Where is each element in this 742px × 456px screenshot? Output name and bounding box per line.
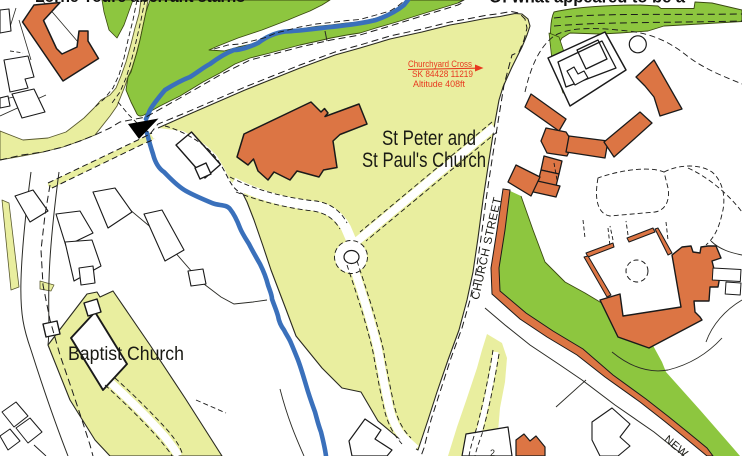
svg-text:2: 2 (490, 448, 495, 456)
svg-text:St Peter and: St Peter and (382, 127, 476, 150)
svg-text:St Paul's Church: St Paul's Church (362, 149, 486, 172)
svg-text:Altitude 408ft: Altitude 408ft (413, 79, 465, 90)
svg-text:Of what appeared to be a: Of what appeared to be a (489, 0, 686, 7)
svg-text:Baptist Church: Baptist Church (68, 343, 184, 365)
svg-text:Lorne Youre aberrant starns: Lorne Youre aberrant starns (35, 0, 245, 6)
